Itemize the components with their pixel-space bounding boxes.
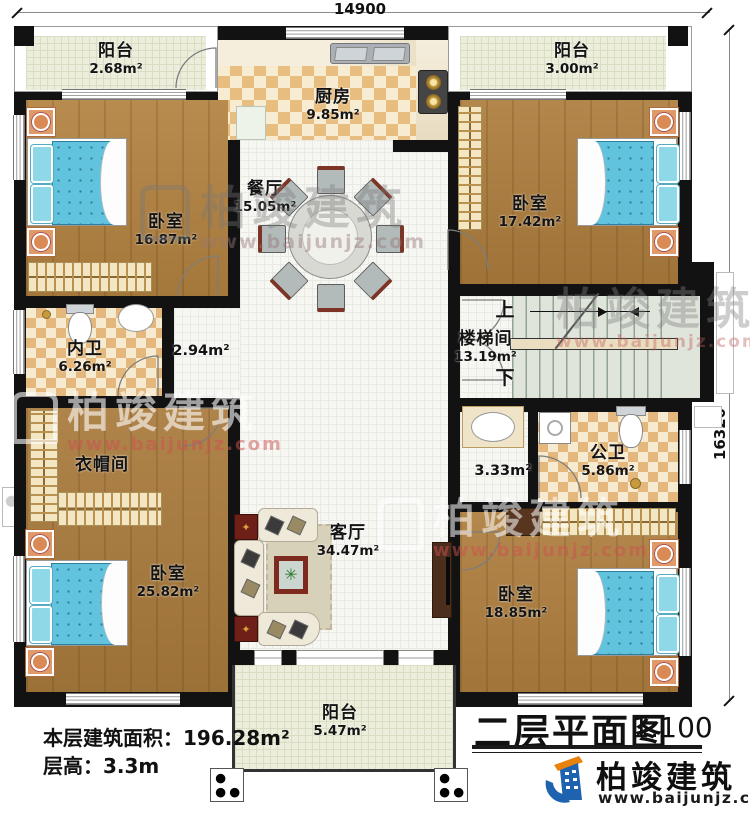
dining-chair — [258, 225, 286, 253]
window — [286, 27, 404, 39]
closet-rack — [58, 492, 162, 526]
stove — [418, 70, 448, 114]
sofa — [234, 540, 264, 616]
label-stairwell: 楼梯间 13.19m² — [438, 330, 533, 365]
label-bath-public: 公卫 5.86m² — [568, 444, 648, 479]
dim-tick — [11, 7, 22, 18]
side-ledge — [716, 272, 734, 394]
label-bath-inner: 内卫 6.26m² — [42, 340, 128, 375]
label-balcony-tl: 阳台 2.68m² — [58, 42, 174, 77]
nightstand — [27, 108, 55, 136]
wardrobe — [28, 262, 152, 292]
window — [470, 89, 566, 100]
stairs — [512, 296, 700, 398]
nightstand — [650, 540, 678, 568]
label-balcony-b: 阳台 5.47m² — [288, 704, 392, 739]
bed — [577, 568, 677, 656]
nightstand — [27, 228, 55, 256]
label-hall-right: 3.33m² — [468, 463, 538, 480]
label-stair-down: 下 — [492, 368, 518, 390]
side-table: ✦ — [234, 514, 258, 540]
label-kitchen: 厨房 9.85m² — [278, 88, 388, 123]
washer-drum — [547, 420, 563, 436]
window — [62, 89, 186, 100]
floor-area-note: 本层建筑面积：196.28m² — [43, 722, 290, 751]
glass-panel — [398, 650, 434, 666]
window — [13, 310, 25, 374]
dining-table-top — [302, 209, 358, 265]
label-balcony-tr: 阳台 3.00m² — [514, 42, 630, 77]
label-bedroom-tr: 卧室 17.42m² — [478, 195, 582, 230]
floor-height-note: 层高：3.3m — [43, 750, 159, 779]
bath-sink — [471, 412, 515, 442]
window — [66, 693, 180, 705]
side-ledge — [694, 406, 722, 428]
title-underline — [472, 745, 702, 749]
column — [668, 26, 688, 46]
label-bedroom-bl: 卧室 25.82m² — [116, 565, 220, 600]
plant: ✳ — [284, 567, 297, 583]
label-living: 客厅 34.47m² — [300, 524, 396, 559]
nightstand — [650, 658, 678, 686]
balcony-post — [434, 768, 468, 802]
closet-rack — [30, 410, 58, 522]
label-bedroom-br: 卧室 18.85m² — [464, 586, 568, 621]
brand-url: www.baijunjz.com — [598, 789, 750, 807]
nightstand — [650, 228, 678, 256]
label-dining: 餐厅 15.05m² — [215, 180, 315, 215]
drawing-scale: 1:100 — [632, 711, 713, 744]
shower-fitting — [42, 310, 51, 319]
floor-drain — [630, 478, 641, 489]
washing-machine — [539, 412, 571, 444]
bed — [577, 138, 677, 226]
dining-chair — [317, 284, 345, 312]
window — [679, 112, 691, 180]
window — [679, 430, 691, 484]
dim-top-label: 14900 — [300, 0, 420, 18]
dresser — [506, 508, 540, 536]
label-stair-up: 上 — [492, 300, 518, 322]
dining-chair — [317, 166, 345, 194]
vanity-counter — [462, 406, 524, 448]
fridge — [236, 106, 266, 140]
bath-sink — [118, 304, 154, 332]
column — [14, 26, 34, 46]
sliding-door — [296, 650, 384, 666]
window — [679, 568, 691, 656]
tv — [446, 557, 450, 605]
sink-basin — [334, 47, 368, 61]
sink-basin — [372, 47, 406, 61]
stair-arrow-head — [598, 307, 607, 317]
wardrobe — [542, 508, 676, 536]
floorplan-canvas: 14900 16320 — [0, 0, 750, 818]
dim-tick — [701, 7, 712, 18]
bed — [27, 138, 127, 226]
nightstand — [26, 648, 54, 676]
window — [13, 115, 25, 180]
brand-logo-icon — [536, 750, 592, 806]
stair-arrow-head — [630, 307, 639, 317]
label-hall-left: 2.94m² — [168, 343, 234, 360]
nightstand — [26, 530, 54, 558]
glass-panel — [254, 650, 282, 666]
bed — [26, 560, 128, 646]
dining-chair — [376, 225, 404, 253]
balcony-post — [210, 768, 244, 802]
kitchen-sink — [330, 43, 410, 64]
label-closet: 衣帽间 — [56, 456, 148, 476]
label-bedroom-tl: 卧室 16.87m² — [115, 213, 217, 248]
coffee-table: ✳ — [274, 556, 308, 594]
stair-flight-down — [512, 350, 672, 398]
stair-rail — [510, 338, 678, 350]
sofa — [258, 612, 320, 646]
window — [13, 556, 25, 642]
side-table: ✦ — [234, 616, 258, 642]
tv-cabinet — [432, 542, 452, 618]
nightstand — [650, 108, 678, 136]
